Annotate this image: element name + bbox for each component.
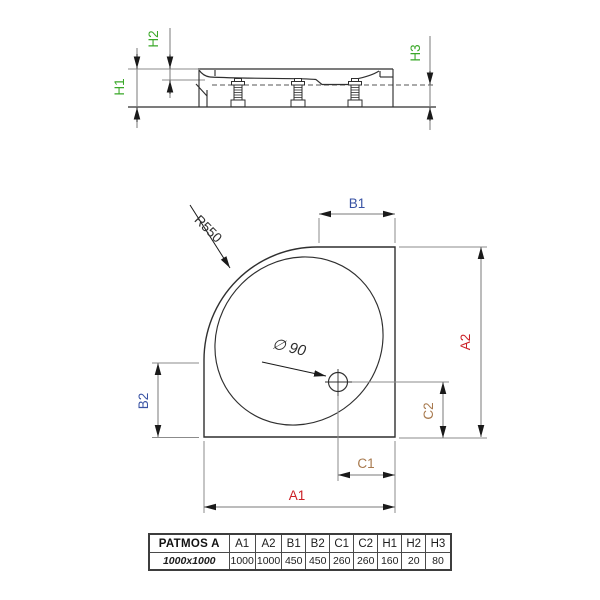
a1-label: A1 [289,488,306,503]
c1-dimension: C1 [338,456,395,475]
col-header-h3: H3 [426,534,451,553]
h2-dimension: H2 [146,28,170,98]
plan-extension-lines [152,218,487,513]
h2-label: H2 [146,30,161,47]
h3-label: H3 [408,44,423,61]
col-header-c1: C1 [330,534,354,553]
b1-label: B1 [349,196,366,211]
drain-diameter-label: ∅ 90 [271,336,309,360]
spec-table: PATMOS A A1 A2 B1 B2 C1 C2 H1 H2 H3 1000… [148,533,452,571]
b1-dimension: B1 [319,196,395,214]
a1-dimension: A1 [204,488,395,507]
side-view-extension-lines [128,69,436,107]
value-a2: 1000 [255,553,281,571]
radius-callout: R550 [190,205,230,268]
table-value-row: 1000x1000 1000 1000 450 450 260 260 160 … [149,553,451,571]
model-name: PATMOS A [149,534,229,553]
tray-feet [231,79,362,107]
model-size: 1000x1000 [149,553,229,571]
value-c1: 260 [330,553,354,571]
plan-view: R550 ∅ 90 B1 B2 [136,196,487,513]
col-header-b1: B1 [282,534,306,553]
col-header-h1: H1 [378,534,402,553]
drawing-canvas: H1 H2 H3 R550 [0,0,600,600]
drain [325,369,352,396]
value-b1: 450 [282,553,306,571]
shower-tray-technical-drawing: H1 H2 H3 R550 [0,0,600,600]
foot [348,79,362,107]
drain-diameter-callout: ∅ 90 [262,336,326,376]
col-header-h2: H2 [402,534,426,553]
value-b2: 450 [306,553,330,571]
col-header-a1: A1 [229,534,255,553]
b2-dimension: B2 [136,363,158,437]
radius-label: R550 [191,212,224,245]
h1-label: H1 [112,78,127,95]
a2-dimension: A2 [458,247,481,437]
table-header-row: PATMOS A A1 A2 B1 B2 C1 C2 H1 H2 H3 [149,534,451,553]
side-view: H1 H2 H3 [112,28,436,130]
value-c2: 260 [354,553,378,571]
h1-dimension: H1 [112,48,137,128]
foot [291,79,305,107]
col-header-b2: B2 [306,534,330,553]
c1-label: C1 [357,456,374,471]
value-h3: 80 [426,553,451,571]
value-h2: 20 [402,553,426,571]
c2-label: C2 [421,402,436,419]
c2-dimension: C2 [421,382,443,438]
b2-label: B2 [136,393,151,410]
foot [231,79,245,107]
col-header-a2: A2 [255,534,281,553]
h3-dimension: H3 [408,36,430,130]
value-h1: 160 [378,553,402,571]
a2-label: A2 [458,334,473,351]
value-a1: 1000 [229,553,255,571]
col-header-c2: C2 [354,534,378,553]
